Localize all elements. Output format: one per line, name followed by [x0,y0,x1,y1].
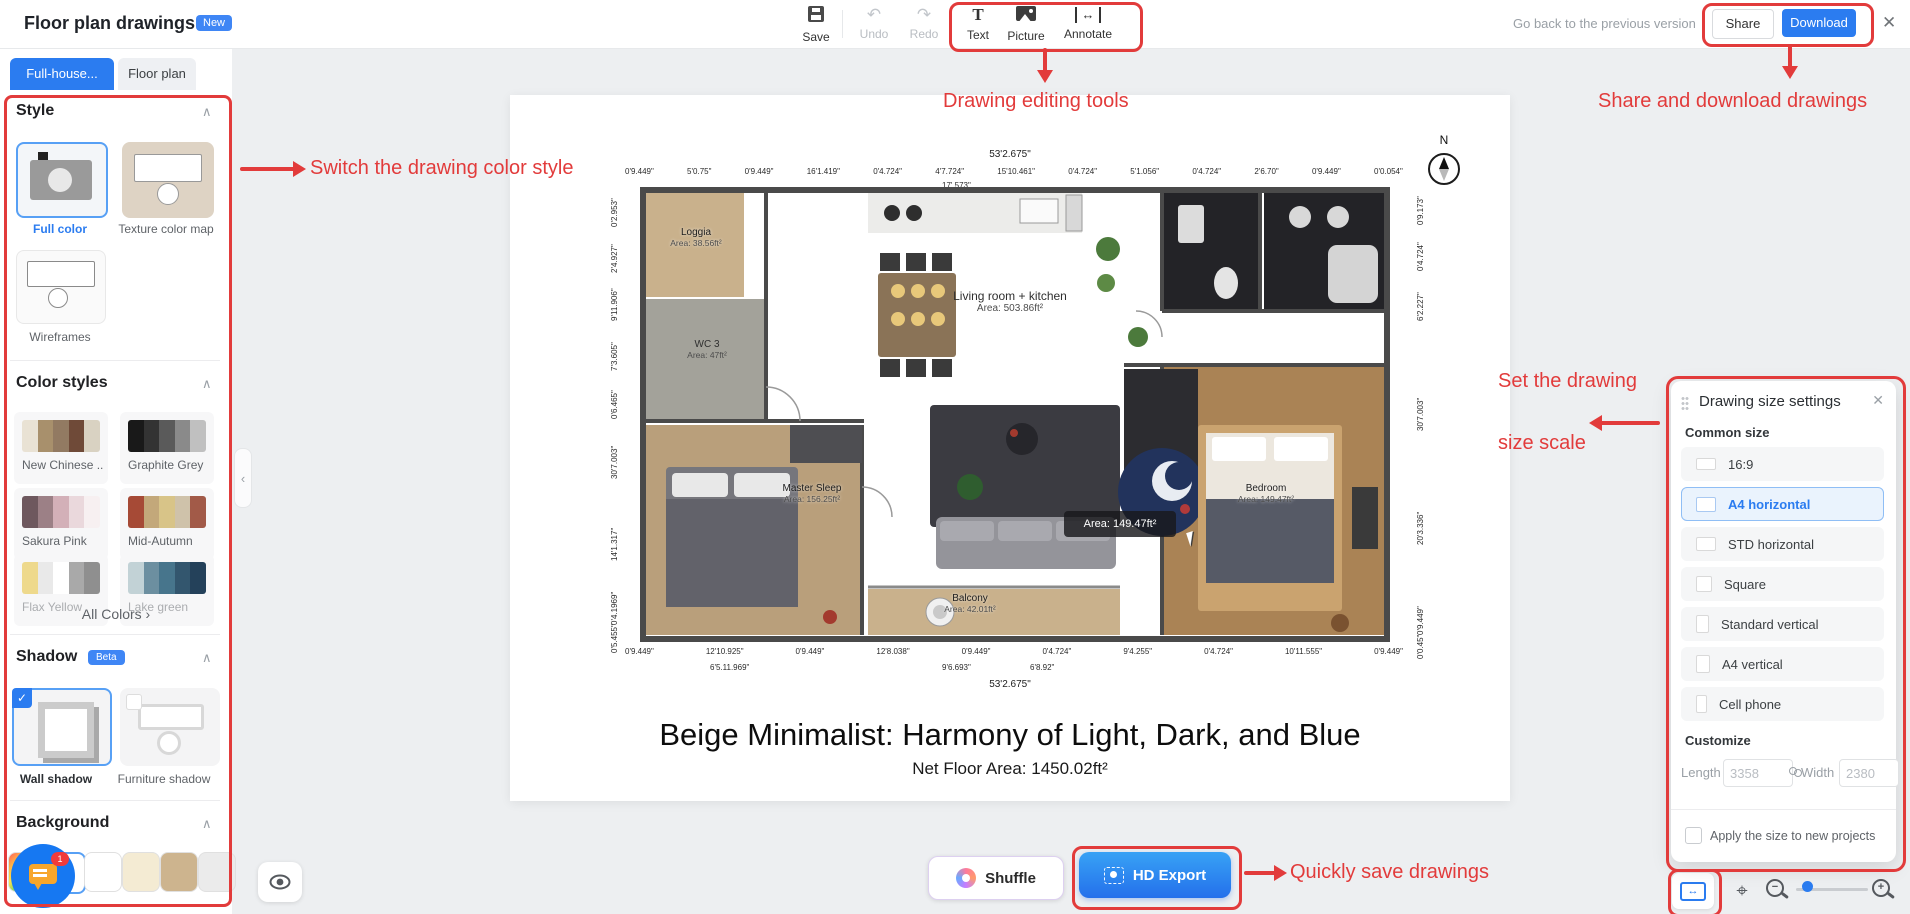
fit-width-icon: ↔ [1680,882,1706,901]
annotate-tool-button[interactable]: ↔ Annotate [1058,6,1118,41]
close-icon[interactable]: ✕ [1882,13,1896,33]
page-title: Floor plan drawings [24,13,195,34]
dim-bottom-9: 0'9.449" [1374,647,1403,656]
dims-top-row: 0'9.449"5'0.75"0'9.449"16'1.419"0'4.724"… [625,167,1403,176]
shadow-section-title: Shadow [16,648,77,666]
customize-label: Customize [1685,733,1751,748]
palette-swatch-strip [128,562,206,594]
wc3-floor [646,299,766,421]
dim-bottom-5: 0'4.724" [1042,647,1071,656]
size-option-label: A4 horizontal [1728,497,1810,512]
size-option-square[interactable]: Square [1681,567,1884,601]
plus-icon: + [1874,881,1888,895]
annotation-arrow-right [1244,871,1276,875]
dim-left-7: 0'4.1969" [610,592,619,625]
dim-top-10: 2'6.70" [1254,167,1278,176]
zoom-slider-thumb[interactable] [1802,881,1813,892]
divider [10,634,220,635]
dim-right-0: 0'9.173" [1416,196,1425,225]
size-option-16-9[interactable]: 16:9 [1681,447,1884,481]
toolbar-divider [842,10,843,38]
room-label-loggia: LoggiaArea: 38.56ft² [654,227,738,248]
eye-icon [269,874,291,890]
annotation-share-download: Share and download drawings [1598,90,1867,113]
style-option-texture[interactable] [122,142,214,218]
text-tool-icon: T [972,6,983,24]
annotation-arrow-down [1788,44,1792,68]
annotation-size-scale-1: Set the drawing [1498,370,1637,393]
drawing-title: Beige Minimalist: Harmony of Light, Dark… [510,717,1510,753]
dim-top-7: 0'4.724" [1068,167,1097,176]
color-styles-section-title: Color styles [16,374,108,392]
dim-top-9: 0'4.724" [1192,167,1221,176]
shadow-label-furniture: Furniture shadow [116,772,212,786]
divider [10,360,220,361]
dim-top-6: 15'10.461" [997,167,1035,176]
dim-right-1: 0'4.724" [1416,242,1425,271]
close-icon[interactable]: ✕ [1872,392,1884,409]
background-section-title: Background [16,814,109,832]
chevron-up-icon[interactable]: ∧ [202,104,212,120]
dim-left-8: 0'5.455" [610,624,619,653]
background-swatch-3[interactable] [122,852,160,892]
drawing-size-settings-panel: Drawing size settings ✕ Common size 16:9… [1671,381,1896,862]
dim-left-5: 30'7.003" [610,446,619,479]
style-label-full-color: Full color [12,222,108,236]
dim-top-5: 4'7.724" [935,167,964,176]
width-input[interactable] [1839,759,1899,787]
palette-swatch-strip [22,420,100,452]
size-option-a4-vertical[interactable]: A4 vertical [1681,647,1884,681]
apply-label: Apply the size to new projects [1710,829,1875,843]
plant [1128,327,1148,347]
size-option-cell-phone[interactable]: Cell phone [1681,687,1884,721]
dim-bottom-sub-1: 6'5.11.969" [710,663,749,672]
new-badge: New [196,15,232,31]
save-button[interactable]: Save [790,6,842,44]
annotation-editing-tools: Drawing editing tools [943,90,1129,113]
dim-top-3: 16'1.419" [807,167,840,176]
dim-right-5: 0'9.449" [1416,606,1425,635]
dim-top-1: 5'0.75" [687,167,711,176]
dim-bottom-0: 0'9.449" [625,647,654,656]
size-option-label: 16:9 [1728,457,1753,472]
length-input[interactable] [1723,759,1793,787]
furniture-shadow-preview [138,704,204,730]
annotation-arrow-down [1043,48,1047,72]
feedback-chat-button[interactable]: 1 [11,844,75,908]
sidebar-tab-1[interactable]: Floor plan [118,58,196,90]
dim-left-2: 9'11.906" [610,288,619,321]
chevron-up-icon[interactable]: ∧ [202,650,212,666]
dim-left-4: 0'6.465" [610,390,619,419]
palette-swatch-strip [128,496,206,528]
page-size-icon [1696,695,1707,713]
page-size-icon [1696,615,1709,633]
plant [1097,274,1115,292]
chevron-up-icon[interactable]: ∧ [202,816,212,832]
page-size-icon [1696,576,1712,592]
zoom-out-button[interactable]: − [1766,879,1784,897]
picture-tool-button[interactable]: Picture [1000,6,1052,43]
size-option-label: Cell phone [1719,697,1781,712]
beta-badge: Beta [88,650,125,665]
palette-name: New Chinese ... [22,458,104,472]
palette-2[interactable]: Sakura Pink [14,488,108,560]
dim-top-8: 5'1.056" [1130,167,1159,176]
annotate-icon: ↔ [1075,7,1101,23]
dim-bottom-main: 53'2.675" [510,679,1510,690]
room-label-wc-3: WC 3Area: 47ft² [662,339,752,360]
annotation-arrow-right [240,167,295,171]
all-colors-link[interactable]: All Colors › [0,606,232,622]
full-color-preview [30,160,92,200]
dim-right-6: 0'0.45" [1416,635,1425,659]
wall-shadow-preview [38,702,94,758]
size-option-std-horizontal[interactable]: STD horizontal [1681,527,1884,561]
dim-bottom-2: 0'9.449" [796,647,825,656]
floor-plan-image [640,187,1390,642]
room-label-living-room-kitchen: Living room + kitchenArea: 503.86ft² [930,289,1090,314]
notification-badge: 1 [51,852,69,866]
net-floor-area: Net Floor Area: 1450.02ft² [510,759,1510,779]
divider [10,800,220,801]
redo-button[interactable]: ↷ Redo [898,6,950,41]
palette-0[interactable]: New Chinese ... [14,412,108,484]
room-label-bedroom: BedroomArea: 149.47ft² [1196,483,1336,504]
annotation-switch-style: Switch the drawing color style [310,157,573,180]
background-swatch-4[interactable] [160,852,198,892]
palette-name: Mid-Autumn [128,534,210,548]
shadow-option-furniture[interactable] [120,688,220,766]
size-panel-title: Drawing size settings [1699,393,1841,410]
common-size-label: Common size [1685,425,1770,440]
texture-preview [134,154,202,182]
dim-bottom-3: 12'8.038" [876,647,909,656]
dim-top-12: 0'0.054" [1374,167,1403,176]
background-swatch-5[interactable] [198,852,236,892]
dim-bottom-7: 0'4.724" [1204,647,1233,656]
size-option-label: Standard vertical [1721,617,1819,632]
chevron-up-icon[interactable]: ∧ [202,376,212,392]
room-label-balcony: BalconyArea: 42.01ft² [900,593,1040,614]
shadow-option-wall[interactable]: ✓ [12,688,112,766]
apply-size-row[interactable]: Apply the size to new projects [1685,827,1875,844]
wireframes-preview [27,261,95,287]
size-option-a4-horizontal[interactable]: A4 horizontal [1681,487,1884,521]
desk [1352,487,1378,549]
palette-name: Sakura Pink [22,534,104,548]
dim-top-2: 0'9.449" [745,167,774,176]
link-icon[interactable] [1789,767,1801,777]
page-size-icon [1696,537,1716,551]
size-option-label: Square [1724,577,1766,592]
zoom-in-button[interactable]: + [1872,879,1890,897]
hd-export-button[interactable]: HD Export [1079,852,1231,898]
style-label-texture: Texture color map [118,222,214,236]
page-size-icon [1696,655,1710,673]
size-option-label: STD horizontal [1728,537,1814,552]
area-tooltip: Area: 149.47ft² [1064,511,1176,537]
dim-bottom-4: 0'9.449" [962,647,991,656]
annotation-quick-save: Quickly save drawings [1290,861,1489,884]
dim-left-6: 14'1.317" [610,528,619,561]
size-option-standard-vertical[interactable]: Standard vertical [1681,607,1884,641]
annotation-arrow-left [1600,421,1660,425]
compass-north-label: N [1428,133,1460,147]
style-option-full-color[interactable] [16,142,108,218]
dim-left-1: 2'4.927" [610,244,619,273]
camera-icon [1104,867,1124,884]
dim-right-4: 20'3.336" [1416,512,1425,545]
dims-bottom-row: 0'9.449"12'10.925"0'9.449"12'8.038"0'9.4… [625,647,1403,656]
shuffle-button[interactable]: Shuffle [928,856,1064,900]
fit-width-button[interactable]: ↔ [1672,873,1714,909]
palette-1[interactable]: Graphite Grey [120,412,214,484]
background-swatch-2[interactable] [84,852,122,892]
sidebar-collapse-handle[interactable]: ‹ [234,448,252,508]
palette-3[interactable]: Mid-Autumn [120,488,214,560]
redo-icon: ↷ [917,6,931,24]
style-section-title: Style [16,102,54,120]
annotation-size-scale-2: size scale [1498,432,1586,455]
dim-right-2: 6'2.227" [1416,292,1425,321]
size-option-label: A4 vertical [1722,657,1783,672]
apply-checkbox[interactable] [1685,827,1702,844]
width-label: Width [1801,765,1834,780]
save-icon [808,6,824,22]
center-view-button[interactable]: ⌖ [1722,873,1762,909]
app-window: Floor plan drawings New Save ↶ Undo ↷ Re… [0,0,1910,914]
shadow-label-wall: Wall shadow [8,772,104,786]
page-size-icon [1696,497,1716,512]
preview-eye-button[interactable] [258,862,302,902]
checkbox-checked-icon[interactable]: ✓ [12,688,32,708]
dim-bottom-1: 12'10.925" [706,647,744,656]
length-label: Length [1681,765,1721,780]
shuffle-icon [956,868,976,888]
share-button[interactable]: Share [1712,9,1774,39]
dim-bottom-sub-3: 6'8.92" [1030,663,1054,672]
dim-bottom-6: 9'4.255" [1123,647,1152,656]
minus-icon: − [1768,881,1782,895]
text-tool-button[interactable]: T Text [952,6,1004,42]
undo-button[interactable]: ↶ Undo [848,6,900,41]
plant [1096,237,1120,261]
download-button[interactable]: Download [1782,9,1856,37]
checkbox-unchecked[interactable] [126,694,142,710]
palette-swatch-strip [128,420,206,452]
dim-left-0: 0'2.953" [610,198,619,227]
dim-top-0: 0'9.449" [625,167,654,176]
drag-handle-icon[interactable] [1681,396,1689,410]
dim-bottom-8: 10'11.555" [1285,647,1322,656]
master-wardrobe [790,425,862,463]
style-option-wireframes[interactable] [16,250,106,324]
palette-swatch-strip [22,562,100,594]
compass-icon [1428,153,1460,185]
drawing-artboard[interactable]: 53'2.675" 0'9.449"5'0.75"0'9.449"16'1.41… [510,95,1510,801]
dim-top-main: 53'2.675" [510,149,1510,160]
picture-icon [1016,6,1036,21]
floor-plan[interactable]: LoggiaArea: 38.56ft²WC 3Area: 47ft²Livin… [640,187,1390,642]
palette-swatch-strip [22,496,100,528]
page-size-icon [1696,458,1716,470]
palette-name: Graphite Grey [128,458,210,472]
room-label-master-sleep: Master SleepArea: 156.25ft² [752,483,872,504]
dim-left-3: 7'3.605" [610,342,619,371]
divider [1671,809,1896,810]
top-toolbar: Floor plan drawings New Save ↶ Undo ↷ Re… [0,0,1910,49]
go-back-link[interactable]: Go back to the previous version [1513,16,1696,31]
dim-top-11: 0'9.449" [1312,167,1341,176]
dim-top-4: 0'4.724" [873,167,902,176]
chat-icon [29,864,57,884]
style-label-wireframes: Wireframes [12,330,108,344]
left-sidebar: Full-house...Floor plan Style ∧ Full col… [0,48,232,914]
dim-bottom-sub-2: 9'6.693" [942,663,971,672]
sidebar-tab-0[interactable]: Full-house... [10,58,114,90]
plant [957,474,983,500]
undo-icon: ↶ [867,6,881,24]
dim-right-3: 30'7.003" [1416,398,1425,431]
stool [1331,614,1349,632]
